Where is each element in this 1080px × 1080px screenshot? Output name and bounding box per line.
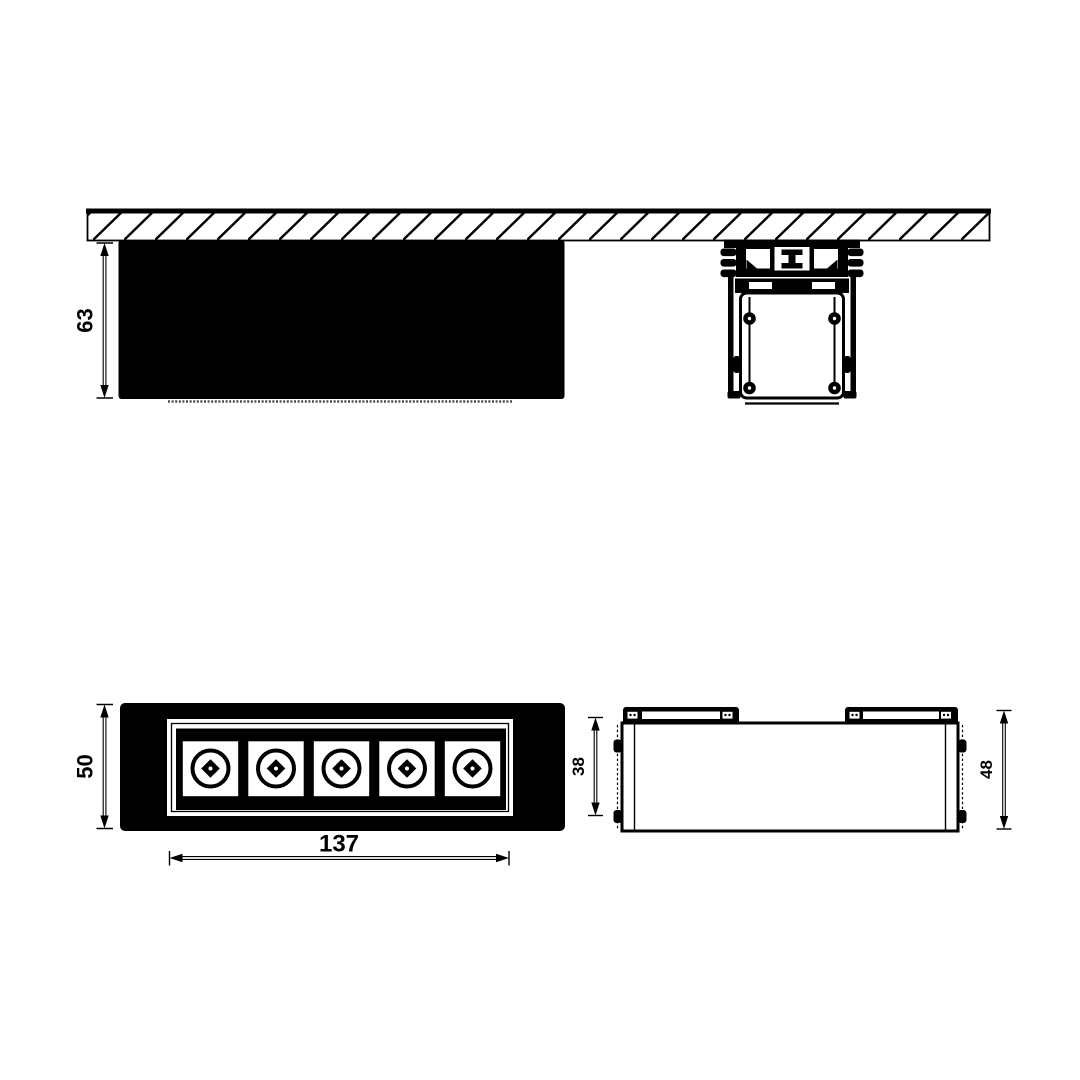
arrowhead-down: [1000, 816, 1008, 829]
arrowhead-down: [100, 385, 108, 398]
spring-fin: [848, 249, 864, 257]
spring-fin: [848, 259, 864, 267]
clip-mark-dot: [943, 714, 945, 716]
clip-mark-dot: [947, 714, 949, 716]
outer-wall: [728, 277, 734, 398]
clip-mark-dot: [629, 714, 631, 716]
dimension-front-width: 137: [170, 831, 510, 866]
gasket-slot: [749, 282, 772, 289]
arrowhead-up: [100, 705, 108, 718]
wall-foot: [728, 391, 741, 399]
clip-slot: [863, 712, 939, 720]
profile-body: [741, 293, 844, 398]
spring-fin: [721, 259, 737, 267]
arrowhead-down: [100, 816, 108, 829]
dimension-recess-depth: 63: [73, 243, 114, 398]
dimension-front-height: 50: [73, 705, 114, 829]
screw-highlight: [833, 317, 836, 320]
recessed-housing-silhouette: [119, 240, 565, 399]
clip-end-mark: [628, 712, 638, 719]
spring-fin: [721, 249, 737, 257]
led-chip-dot: [471, 767, 475, 771]
dim-text-recess-depth: 63: [73, 308, 98, 332]
clip-mark-dot: [633, 714, 635, 716]
view-side: 38 48: [569, 707, 1012, 831]
led-chip-dot: [209, 767, 213, 771]
view-ceiling-section: 63: [73, 211, 992, 404]
clip-mark-dot: [728, 714, 730, 716]
arrowhead-up: [100, 243, 108, 256]
led-chip-dot: [405, 767, 409, 771]
arrowhead-left: [170, 854, 183, 862]
screw-highlight: [833, 386, 836, 389]
dim-text-front-height: 50: [73, 754, 98, 778]
wall-foot: [844, 391, 857, 399]
ceiling-hatch-band: [88, 211, 990, 241]
arrowhead-up: [1000, 711, 1008, 724]
clip-end-mark: [941, 712, 951, 719]
clip-mark-dot: [855, 714, 857, 716]
luminaire-dimension-drawing: 63: [0, 0, 1080, 1080]
arrowhead-right: [496, 854, 509, 862]
led-cell: [248, 741, 305, 798]
drawing-sheet: 63: [0, 0, 1080, 1080]
side-housing-body: [622, 723, 958, 831]
clip-mark-dot: [724, 714, 726, 716]
led-cell: [182, 741, 239, 798]
led-chip-dot: [340, 767, 344, 771]
clip-end-mark: [723, 712, 733, 719]
screw-highlight: [748, 386, 751, 389]
view-front: 50 137: [73, 703, 566, 866]
dimension-housing-height: 38: [569, 718, 603, 816]
clip-slot: [642, 712, 720, 720]
arrowhead-up: [591, 718, 599, 731]
spring-fin: [848, 270, 864, 278]
led-chip-dot: [274, 767, 278, 771]
led-cell: [313, 741, 370, 798]
dimension-overall-height: 48: [977, 711, 1012, 830]
bracket-top-plate: [724, 240, 860, 249]
cross-section-profile: [721, 240, 864, 404]
spring-fin: [721, 270, 737, 278]
led-cell: [444, 741, 501, 798]
screw-highlight: [748, 317, 751, 320]
gasket-slot: [812, 282, 835, 289]
outer-wall: [851, 277, 857, 398]
led-cell: [379, 741, 436, 798]
dim-text-housing-height: 38: [569, 757, 588, 776]
dim-text-overall-height: 48: [977, 760, 996, 779]
arrowhead-down: [591, 803, 599, 816]
clip-end-mark: [850, 712, 860, 719]
dim-text-front-width: 137: [319, 831, 359, 858]
clip-mark-dot: [851, 714, 853, 716]
